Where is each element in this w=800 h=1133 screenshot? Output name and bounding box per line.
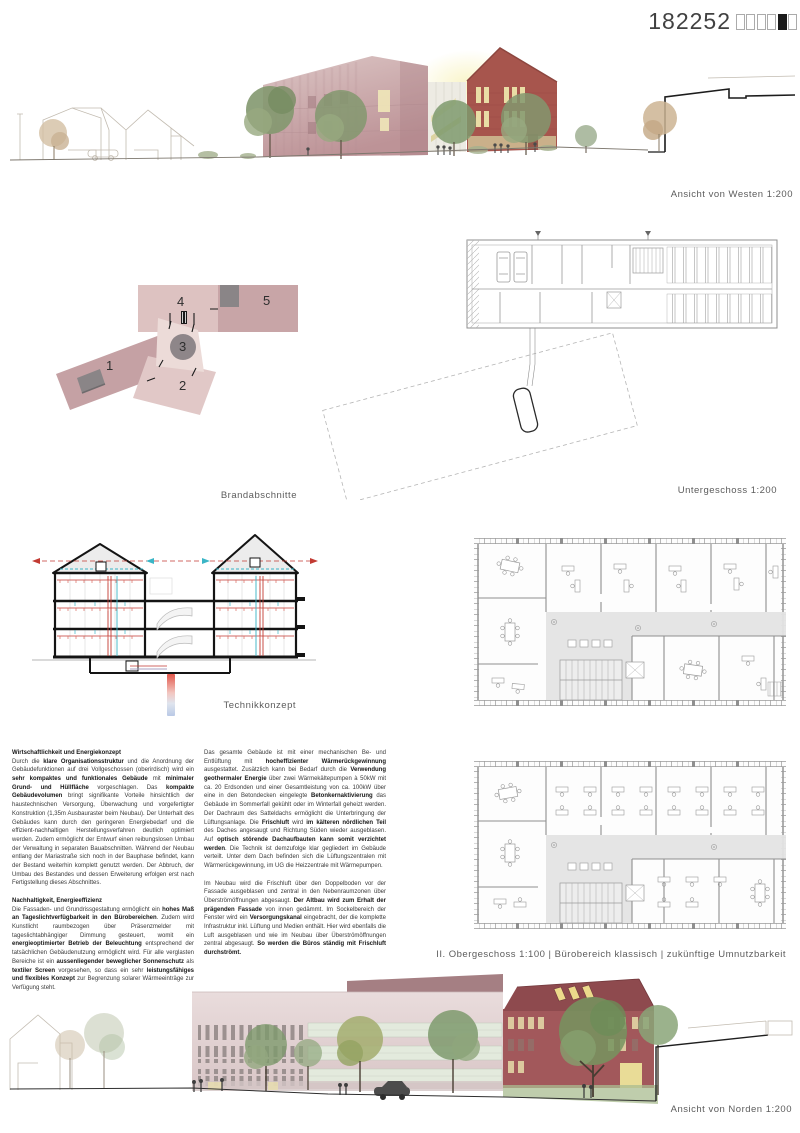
fire-section-label-5: 5 [263, 293, 271, 308]
tan-tree-right [643, 101, 677, 151]
caption-untergeschoss: Untergeschoss 1:200 [678, 485, 777, 496]
brandabschnitte-figure [30, 275, 300, 510]
obergeschoss-plan-klassisch [468, 532, 790, 712]
paragraph-body: Das gesamte Gebäude ist mit einer mechan… [204, 749, 386, 871]
north-elevation-figure [8, 973, 796, 1108]
text-block-haustechnik: Das gesamte Gebäude ist mit einer mechan… [204, 749, 386, 871]
text-column-2: Das gesamte Gebäude ist mit einer mechan… [204, 749, 386, 967]
caption-obergeschoss: II. Obergeschoss 1:100 | Bürobereich kla… [436, 949, 786, 960]
caption-brandabschnitte: Brandabschnitte [221, 490, 297, 501]
fire-section-label-2: 2 [179, 378, 187, 393]
tan-tree [39, 119, 69, 160]
fire-section-label-1: 1 [106, 358, 114, 373]
roof-behind [347, 974, 503, 992]
competition-board: 182252 [0, 0, 800, 1133]
obergeschoss-plan-umnutzung [468, 755, 790, 935]
atrium-stairs [150, 578, 192, 658]
paragraph-body: Durch die klare Organisationsstruktur un… [12, 758, 194, 888]
paragraph-heading: Nachhaltigkeit, Energieeffizienz [12, 897, 194, 906]
paragraph-body: Im Neubau wird die Frischluft über den D… [204, 880, 386, 958]
lit-window [380, 118, 389, 131]
caption-west-elevation: Ansicht von Westen 1:200 [671, 189, 793, 200]
terrain-section-line [656, 1035, 768, 1101]
technikkonzept-figure [30, 528, 320, 718]
core-outline [512, 387, 539, 434]
untergeschoss-plan-figure [300, 228, 796, 500]
text-block-wirtschaftlichkeit: Wirtschaftlichkeit und Energiekonzept Du… [12, 749, 194, 888]
entry-digit-boxes [734, 14, 797, 30]
fire-section-label-3: 3 [179, 339, 187, 354]
paragraph-heading: Wirtschaftlichkeit und Energiekonzept [12, 749, 194, 758]
fire-section-label-4: 4 [177, 294, 185, 309]
entry-number-block: 182252 [648, 8, 797, 35]
entry-number: 182252 [648, 8, 731, 35]
text-block-frischluft: Im Neubau wird die Frischluft über den D… [204, 880, 386, 958]
footprint-dashed-outline [323, 333, 638, 500]
lit-window [378, 90, 390, 112]
west-elevation-figure [8, 38, 796, 188]
caption-north-elevation: Ansicht von Norden 1:200 [671, 1104, 792, 1115]
basement [90, 657, 230, 673]
terrain-section-line [665, 89, 795, 152]
faint-trees [55, 1013, 125, 1089]
geothermal-probe [167, 674, 175, 716]
text-column-1: Wirtschaftlichkeit und Energiekonzept Du… [12, 749, 194, 1002]
caption-technikkonzept: Technikkonzept [224, 700, 296, 711]
basement-stair [633, 248, 663, 273]
